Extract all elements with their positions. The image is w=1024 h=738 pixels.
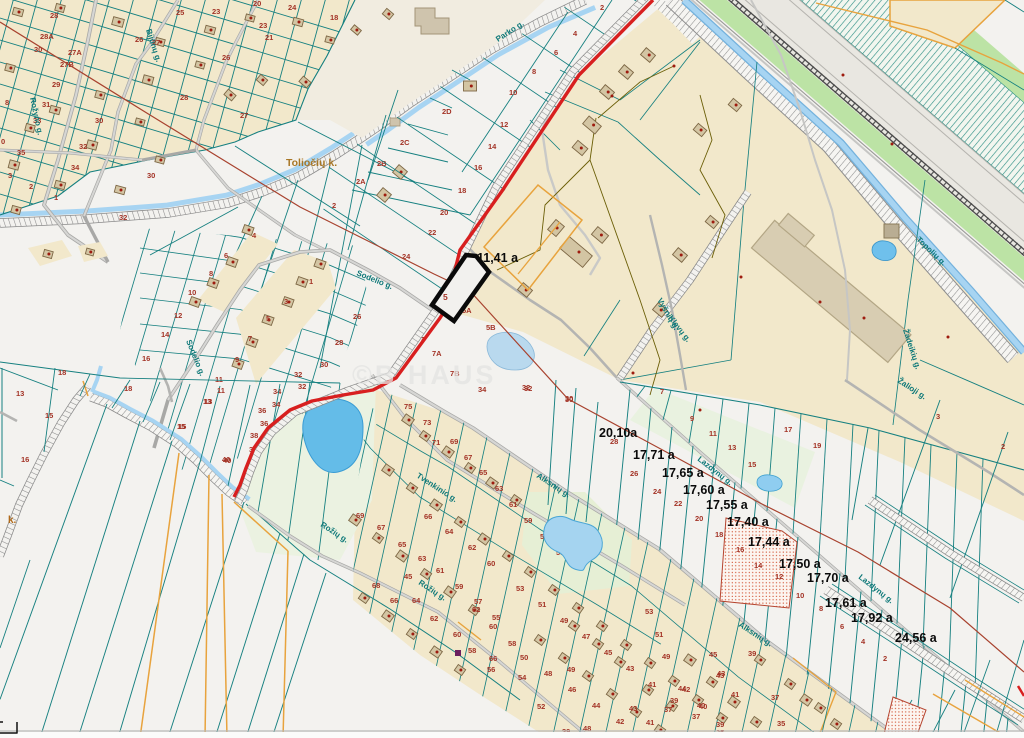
svg-text:32: 32 [298, 382, 306, 391]
svg-text:39: 39 [670, 696, 678, 705]
svg-text:25: 25 [176, 8, 184, 17]
svg-text:58: 58 [468, 646, 476, 655]
svg-text:17,71 a: 17,71 a [633, 448, 676, 462]
svg-text:29: 29 [52, 80, 60, 89]
svg-text:14: 14 [161, 330, 170, 339]
svg-text:37: 37 [692, 712, 700, 721]
svg-text:52: 52 [537, 702, 545, 711]
svg-text:k.: k. [8, 515, 17, 526]
svg-text:43: 43 [626, 664, 634, 673]
svg-text:20,10a: 20,10a [599, 426, 638, 440]
svg-text:28: 28 [180, 93, 188, 102]
svg-text:26: 26 [222, 53, 230, 62]
svg-text:17,70 a: 17,70 a [807, 571, 850, 585]
svg-text:45: 45 [604, 648, 612, 657]
svg-text:13: 13 [728, 443, 736, 452]
svg-text:9: 9 [690, 414, 694, 423]
svg-text:20: 20 [695, 514, 703, 523]
svg-text:64: 64 [412, 596, 421, 605]
svg-text:16: 16 [21, 455, 29, 464]
svg-text:46: 46 [568, 685, 576, 694]
svg-text:16: 16 [474, 163, 482, 172]
svg-text:18: 18 [715, 530, 723, 539]
svg-text:13: 13 [16, 389, 24, 398]
svg-text:3: 3 [8, 171, 12, 180]
svg-text:2D: 2D [442, 107, 452, 116]
svg-text:18: 18 [458, 186, 466, 195]
svg-text:3: 3 [936, 412, 940, 421]
svg-text:16: 16 [142, 354, 150, 363]
svg-text:14: 14 [754, 561, 763, 570]
svg-text:15: 15 [748, 460, 756, 469]
svg-text:59: 59 [524, 516, 532, 525]
svg-text:49: 49 [560, 616, 568, 625]
svg-text:5: 5 [443, 292, 448, 302]
svg-text:22: 22 [674, 499, 682, 508]
svg-text:18: 18 [330, 13, 338, 22]
svg-text:32: 32 [119, 213, 127, 222]
svg-text:60: 60 [487, 559, 495, 568]
svg-text:73: 73 [423, 418, 431, 427]
svg-text:1: 1 [54, 193, 58, 202]
svg-text:60: 60 [489, 622, 497, 631]
svg-text:50: 50 [520, 653, 528, 662]
svg-text:2: 2 [883, 654, 887, 663]
svg-text:63: 63 [495, 484, 503, 493]
svg-text:69: 69 [450, 437, 458, 446]
svg-text:40: 40 [697, 701, 705, 710]
svg-text:20: 20 [253, 0, 261, 8]
svg-text:17,60 a: 17,60 a [683, 483, 726, 497]
svg-text:62: 62 [430, 614, 438, 623]
svg-text:47: 47 [582, 632, 590, 641]
svg-text:35: 35 [777, 719, 785, 728]
svg-text:17,65 a: 17,65 a [662, 466, 705, 480]
svg-text:24: 24 [653, 487, 662, 496]
svg-text:51: 51 [655, 630, 663, 639]
svg-text:12: 12 [775, 572, 783, 581]
svg-text:7: 7 [660, 387, 664, 396]
svg-text:8: 8 [819, 604, 823, 613]
svg-text:18: 18 [58, 368, 66, 377]
svg-text:66: 66 [424, 512, 432, 521]
svg-text:Toliočių k.: Toliočių k. [286, 157, 337, 169]
svg-text:9: 9 [235, 355, 239, 364]
svg-text:39: 39 [748, 649, 756, 658]
svg-text:23: 23 [259, 21, 267, 30]
svg-text:17,55 a: 17,55 a [706, 498, 749, 512]
svg-text:62: 62 [468, 543, 476, 552]
svg-text:2: 2 [332, 201, 336, 210]
svg-text:44: 44 [678, 684, 687, 693]
svg-text:28: 28 [335, 338, 343, 347]
svg-text:28: 28 [50, 11, 58, 20]
svg-text:41: 41 [731, 690, 739, 699]
svg-text:2A: 2A [356, 177, 366, 186]
svg-text:28A: 28A [40, 32, 54, 41]
svg-text:15: 15 [45, 411, 53, 420]
svg-text:48: 48 [583, 724, 591, 733]
svg-text:2: 2 [600, 3, 604, 12]
svg-text:1: 1 [309, 277, 313, 286]
svg-text:58: 58 [508, 639, 516, 648]
svg-text:44: 44 [592, 701, 601, 710]
svg-text:43: 43 [716, 671, 724, 680]
svg-text:45: 45 [709, 650, 717, 659]
svg-text:49: 49 [662, 652, 670, 661]
svg-text:16: 16 [736, 545, 744, 554]
svg-text:53: 53 [516, 584, 524, 593]
svg-text:13: 13 [204, 397, 212, 406]
svg-text:43: 43 [629, 704, 637, 713]
svg-text:3: 3 [284, 297, 288, 306]
svg-text:54: 54 [518, 673, 527, 682]
svg-text:49: 49 [567, 665, 575, 674]
svg-text:31: 31 [42, 100, 50, 109]
svg-text:11: 11 [709, 429, 717, 438]
svg-text:60: 60 [453, 630, 461, 639]
svg-text:32: 32 [294, 370, 302, 379]
svg-text:34: 34 [71, 163, 80, 172]
svg-text:27A: 27A [68, 48, 82, 57]
svg-text:30: 30 [147, 171, 155, 180]
svg-text:35: 35 [17, 148, 25, 157]
svg-text:5B: 5B [486, 323, 496, 332]
svg-text:37: 37 [771, 693, 779, 702]
svg-text:26: 26 [630, 469, 638, 478]
svg-text:24: 24 [288, 3, 297, 12]
svg-text:61: 61 [509, 500, 517, 509]
svg-text:41: 41 [646, 718, 654, 727]
svg-text:17,50 a: 17,50 a [779, 557, 822, 571]
svg-text:26: 26 [135, 35, 143, 44]
svg-text:62: 62 [472, 605, 480, 614]
svg-text:17,40 a: 17,40 a [727, 515, 770, 529]
svg-text:14: 14 [488, 142, 497, 151]
svg-text:30: 30 [320, 360, 328, 369]
svg-text:6: 6 [840, 622, 844, 631]
svg-text:45: 45 [404, 572, 412, 581]
svg-text:17: 17 [784, 425, 792, 434]
svg-text:8: 8 [532, 67, 536, 76]
svg-text:11: 11 [217, 386, 225, 395]
svg-text:18: 18 [124, 384, 132, 393]
svg-text:67: 67 [377, 523, 385, 532]
svg-text:6: 6 [224, 251, 228, 260]
svg-text:42: 42 [616, 717, 624, 726]
svg-text:39: 39 [716, 720, 724, 729]
svg-text:65: 65 [398, 540, 406, 549]
svg-text:63: 63 [418, 554, 426, 563]
svg-text:32: 32 [79, 142, 87, 151]
svg-text:30: 30 [95, 116, 103, 125]
svg-text:22: 22 [428, 228, 436, 237]
svg-text:34: 34 [273, 387, 282, 396]
svg-text:67: 67 [464, 453, 472, 462]
svg-text:51: 51 [538, 600, 546, 609]
svg-text:32: 32 [524, 384, 532, 393]
svg-text:37: 37 [664, 705, 672, 714]
svg-text:68: 68 [372, 581, 380, 590]
svg-text:65: 65 [479, 468, 487, 477]
svg-text:48: 48 [544, 669, 552, 678]
svg-text:66: 66 [390, 596, 398, 605]
svg-text:36: 36 [258, 406, 266, 415]
svg-text:61: 61 [436, 566, 444, 575]
svg-text:66: 66 [489, 654, 497, 663]
svg-text:2C: 2C [400, 138, 410, 147]
svg-text:71: 71 [432, 438, 440, 447]
svg-text:24,56 a: 24,56 a [895, 631, 938, 645]
svg-text:40: 40 [223, 456, 231, 465]
svg-text:55: 55 [492, 613, 500, 622]
svg-text:21: 21 [265, 33, 273, 42]
svg-text:11: 11 [215, 375, 223, 384]
svg-text:69: 69 [356, 511, 364, 520]
svg-text:56: 56 [487, 665, 495, 674]
svg-text:53: 53 [645, 607, 653, 616]
svg-text:0: 0 [1, 137, 5, 146]
svg-text:59: 59 [455, 582, 463, 591]
svg-text:34: 34 [272, 400, 281, 409]
svg-text:41: 41 [648, 680, 656, 689]
svg-text:10: 10 [509, 88, 517, 97]
svg-text:17,44 a: 17,44 a [748, 535, 791, 549]
svg-text:19: 19 [813, 441, 821, 450]
svg-text:12: 12 [174, 311, 182, 320]
svg-text:23: 23 [212, 7, 220, 16]
svg-text:2: 2 [29, 182, 33, 191]
svg-text:15: 15 [177, 422, 185, 431]
svg-text:©B HAUS: ©B HAUS [352, 360, 496, 390]
svg-text:7A: 7A [432, 349, 442, 358]
svg-text:8: 8 [209, 269, 213, 278]
svg-text:38: 38 [250, 431, 258, 440]
svg-text:64: 64 [445, 527, 454, 536]
svg-text:75: 75 [404, 402, 412, 411]
svg-text:17,61 a: 17,61 a [825, 596, 868, 610]
svg-text:17,92 a: 17,92 a [851, 611, 894, 625]
svg-text:5: 5 [266, 314, 270, 323]
svg-text:26: 26 [353, 312, 361, 321]
svg-text:20: 20 [440, 208, 448, 217]
svg-text:7: 7 [248, 334, 252, 343]
svg-text:27: 27 [240, 111, 248, 120]
svg-text:10: 10 [188, 288, 196, 297]
svg-text:10: 10 [796, 591, 804, 600]
svg-text:2: 2 [1001, 442, 1005, 451]
svg-text:27B: 27B [60, 60, 74, 69]
svg-text:11,41 a: 11,41 a [477, 251, 519, 265]
svg-text:8: 8 [5, 98, 9, 107]
